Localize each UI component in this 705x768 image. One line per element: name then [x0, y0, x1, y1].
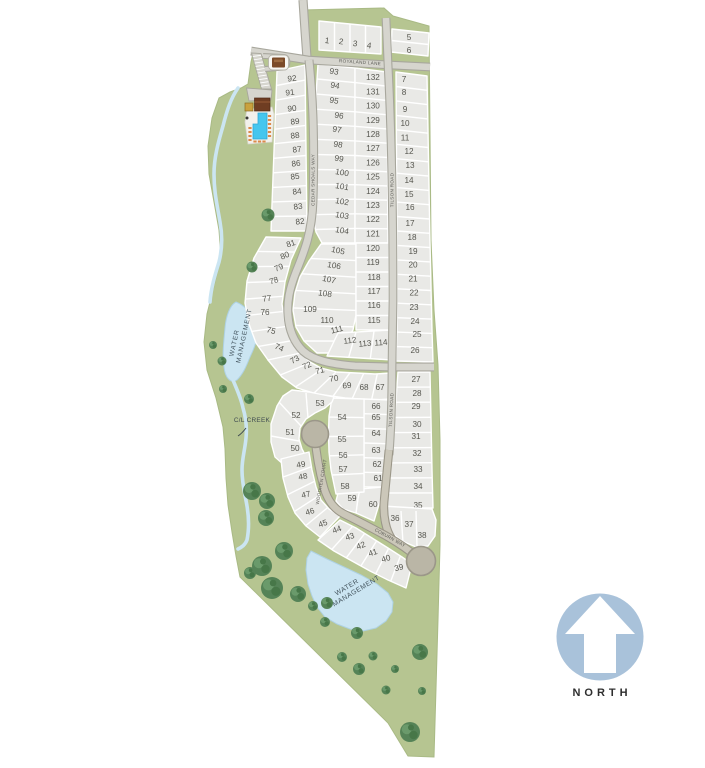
svg-text:20: 20: [408, 261, 418, 270]
svg-text:CEDAR SHOALS WAY: CEDAR SHOALS WAY: [311, 154, 316, 206]
svg-text:6: 6: [407, 46, 412, 55]
svg-text:128: 128: [366, 130, 380, 139]
svg-text:65: 65: [371, 413, 381, 422]
svg-text:54: 54: [337, 413, 347, 422]
svg-text:18: 18: [407, 233, 417, 242]
svg-text:5: 5: [407, 33, 412, 42]
svg-text:77: 77: [262, 294, 273, 304]
svg-text:C/L CREEK: C/L CREEK: [234, 417, 271, 424]
svg-text:10: 10: [400, 119, 410, 128]
svg-text:27: 27: [411, 375, 421, 384]
svg-text:32: 32: [412, 449, 422, 458]
svg-text:68: 68: [359, 383, 369, 392]
svg-text:91: 91: [285, 88, 295, 98]
svg-text:60: 60: [368, 500, 378, 509]
svg-text:119: 119: [366, 258, 379, 267]
svg-text:21: 21: [408, 274, 418, 283]
svg-text:53: 53: [315, 399, 325, 408]
svg-text:115: 115: [367, 316, 380, 325]
svg-text:37: 37: [404, 520, 414, 529]
svg-text:16: 16: [405, 203, 415, 212]
svg-text:67: 67: [375, 383, 385, 392]
svg-text:38: 38: [417, 531, 427, 540]
svg-text:84: 84: [292, 187, 302, 197]
svg-text:129: 129: [366, 116, 380, 125]
svg-text:57: 57: [338, 465, 348, 474]
svg-text:83: 83: [293, 202, 303, 212]
svg-text:31: 31: [411, 432, 421, 441]
svg-text:76: 76: [260, 308, 270, 317]
svg-text:33: 33: [413, 465, 423, 474]
svg-text:92: 92: [287, 74, 297, 84]
svg-text:50: 50: [290, 444, 300, 453]
svg-text:70: 70: [329, 374, 340, 384]
svg-text:82: 82: [295, 217, 305, 227]
svg-text:123: 123: [366, 201, 380, 210]
svg-text:132: 132: [366, 73, 380, 82]
svg-text:63: 63: [371, 446, 381, 455]
svg-text:9: 9: [403, 105, 408, 114]
svg-text:8: 8: [402, 88, 407, 97]
svg-text:127: 127: [366, 144, 380, 153]
svg-text:130: 130: [366, 102, 380, 111]
svg-text:112: 112: [343, 335, 358, 346]
svg-text:58: 58: [340, 482, 350, 491]
svg-text:19: 19: [408, 247, 418, 256]
svg-text:11: 11: [401, 134, 410, 143]
svg-text:110: 110: [320, 316, 333, 325]
svg-text:55: 55: [337, 435, 347, 444]
svg-text:29: 29: [411, 402, 421, 411]
svg-text:131: 131: [366, 87, 380, 96]
svg-text:109: 109: [303, 305, 317, 314]
svg-text:34: 34: [413, 482, 423, 491]
svg-text:24: 24: [410, 317, 420, 326]
svg-text:113: 113: [358, 338, 372, 348]
svg-text:56: 56: [338, 451, 348, 460]
svg-text:89: 89: [290, 117, 300, 127]
svg-text:26: 26: [410, 346, 420, 355]
svg-text:121: 121: [366, 229, 380, 238]
svg-text:NORTH: NORTH: [572, 687, 631, 699]
svg-text:59: 59: [347, 494, 357, 503]
svg-text:30: 30: [412, 420, 422, 429]
svg-text:7: 7: [402, 75, 407, 84]
svg-text:116: 116: [367, 301, 380, 310]
svg-text:17: 17: [405, 219, 415, 228]
svg-text:TILSON ROAD: TILSON ROAD: [390, 172, 395, 207]
svg-text:52: 52: [291, 411, 301, 420]
svg-text:23: 23: [409, 303, 419, 312]
svg-text:120: 120: [366, 244, 380, 253]
svg-text:15: 15: [404, 190, 414, 199]
svg-text:25: 25: [412, 330, 422, 339]
svg-text:122: 122: [366, 215, 380, 224]
svg-text:124: 124: [366, 187, 380, 196]
svg-text:64: 64: [371, 429, 381, 438]
svg-text:36: 36: [390, 514, 400, 523]
svg-text:126: 126: [366, 158, 380, 167]
svg-text:14: 14: [404, 176, 414, 185]
svg-text:66: 66: [371, 402, 381, 411]
svg-text:88: 88: [290, 131, 300, 141]
svg-text:118: 118: [367, 273, 380, 282]
svg-text:86: 86: [291, 159, 301, 169]
svg-text:12: 12: [404, 147, 414, 156]
svg-text:51: 51: [285, 428, 295, 437]
svg-text:114: 114: [374, 338, 388, 348]
svg-text:62: 62: [372, 460, 382, 469]
svg-text:85: 85: [290, 172, 300, 182]
svg-text:125: 125: [366, 173, 380, 182]
svg-text:22: 22: [409, 289, 419, 298]
svg-text:117: 117: [367, 287, 380, 296]
svg-text:13: 13: [405, 161, 415, 170]
svg-text:28: 28: [412, 389, 422, 398]
svg-text:90: 90: [287, 104, 297, 114]
svg-text:87: 87: [292, 145, 302, 155]
svg-text:69: 69: [342, 381, 352, 391]
